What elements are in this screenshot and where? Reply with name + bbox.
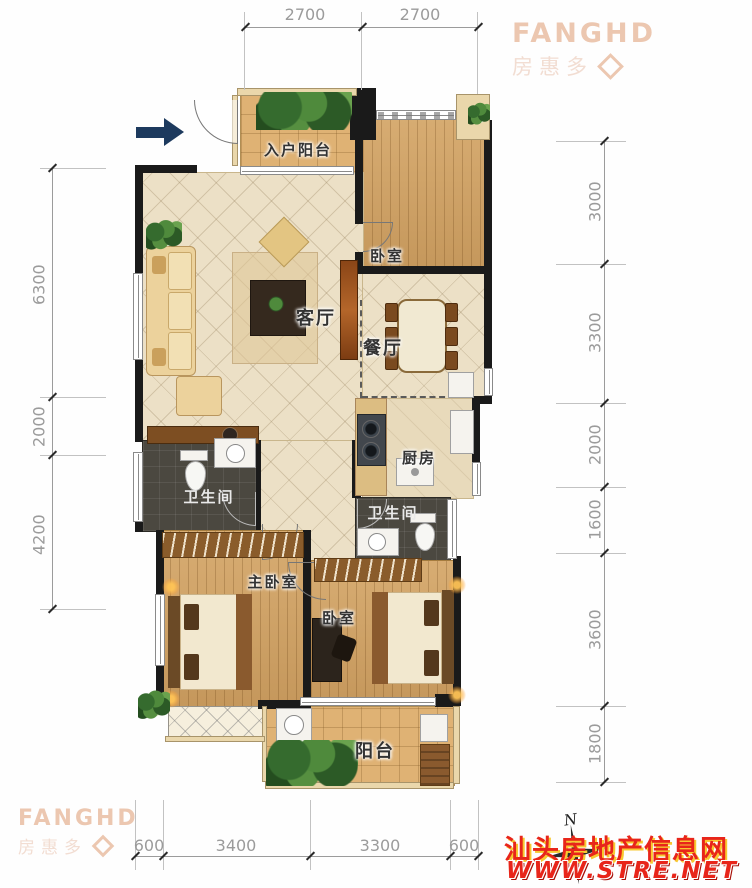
plant <box>468 102 490 126</box>
dimension-label: 2700 <box>365 5 475 23</box>
extension-line <box>556 403 626 404</box>
plant <box>146 220 182 250</box>
wall-segment <box>355 138 363 224</box>
bed-headboard <box>168 596 180 688</box>
wall-segment <box>256 440 261 530</box>
pillow <box>184 604 199 630</box>
extension-line <box>310 800 311 870</box>
wall-segment <box>135 522 143 532</box>
balcony-parapet <box>453 706 460 784</box>
window-mullions <box>378 112 454 119</box>
bed-headboard <box>442 590 454 684</box>
dimension-label: 1600 <box>586 482 604 558</box>
toilet-tank <box>180 450 208 461</box>
tv-console <box>340 260 358 360</box>
table-plant <box>268 296 284 312</box>
window <box>133 273 143 360</box>
wardrobe <box>314 558 422 582</box>
dimension-tick <box>474 22 483 31</box>
washer-drum <box>284 715 304 735</box>
compass-north-label: N <box>563 810 579 830</box>
dimension-line <box>52 168 53 610</box>
brand-logo-top: FANGHD 房惠多 <box>512 18 682 78</box>
nightstand-lamp <box>448 576 466 594</box>
dimension-label: 6300 <box>30 230 48 340</box>
wall-segment <box>135 360 143 442</box>
room-label-balcony: 阳台 <box>350 740 400 760</box>
wash-basin <box>368 533 386 551</box>
stove-burner <box>362 420 380 438</box>
ottoman <box>176 376 222 416</box>
dimension-label: 3300 <box>334 836 426 854</box>
room-label-master-bedroom: 主卧室 <box>242 572 304 590</box>
dining-chair <box>445 351 458 370</box>
window <box>155 594 165 666</box>
wall-segment <box>135 165 197 173</box>
dimension-label: 3000 <box>586 162 604 242</box>
balcony-cabinet <box>420 744 450 786</box>
extension-line <box>556 141 626 142</box>
entry-door-arc <box>194 100 238 144</box>
sofa-cushion <box>168 292 192 330</box>
brand-logo-bottom: FANGHD 房惠多 <box>18 806 158 860</box>
wall-segment <box>484 278 492 370</box>
window <box>472 462 481 496</box>
room-label-living: 客厅 <box>290 306 342 328</box>
bay-window-seat <box>168 706 266 738</box>
sliding-door <box>240 166 354 175</box>
wall-segment <box>362 266 484 274</box>
room-label-bathroom-1: 卫生间 <box>176 488 242 504</box>
plant <box>256 92 352 130</box>
watermark-url: WWW.STRE.NET <box>506 858 738 884</box>
nightstand-lamp <box>162 578 180 596</box>
brand-logo-cn: 房惠多 <box>18 833 87 858</box>
fridge <box>450 410 474 454</box>
pillow <box>184 654 199 680</box>
sofa-pillow <box>152 348 166 366</box>
floorplan-image: 入户阳台 卧室 客厅 餐厅 厨房 卫生间 卫生间 主卧室 卧室 阳台 2700 … <box>0 0 752 888</box>
extension-line <box>244 12 245 90</box>
diamond-icon <box>597 53 624 80</box>
dining-chair <box>445 303 458 322</box>
extension-line <box>556 264 626 265</box>
sliding-door <box>300 697 436 706</box>
room-label-bathroom-2: 卫生间 <box>360 504 426 520</box>
brand-logo-cn: 房惠多 <box>512 51 593 81</box>
room-label-bedroom-2: 卧室 <box>318 608 360 626</box>
dining-chair <box>385 303 398 322</box>
brand-logo-cn-row: 房惠多 <box>512 51 682 81</box>
wall-segment <box>135 165 143 273</box>
dimension-label: 2000 <box>30 392 48 462</box>
nightstand-lamp <box>448 686 466 704</box>
dimension-label: 2700 <box>250 5 360 23</box>
entry-arrow-icon <box>136 118 184 146</box>
dimension-label: 2000 <box>586 405 604 485</box>
entry-arrow-head <box>164 118 184 146</box>
bed-runner <box>236 594 252 690</box>
dimension-label: 1800 <box>586 704 604 784</box>
wardrobe <box>162 532 304 558</box>
stove-burner <box>362 442 380 460</box>
bay-window-sill <box>165 736 265 742</box>
sofa-pillow <box>152 256 166 274</box>
window <box>484 368 493 396</box>
room-label-bedroom-top: 卧室 <box>366 246 408 264</box>
window <box>133 452 143 522</box>
plant <box>138 690 170 720</box>
sideboard <box>448 372 474 398</box>
plant <box>266 740 358 786</box>
wall-segment <box>303 530 311 560</box>
sink-drain <box>411 468 419 476</box>
brand-logo-name: FANGHD <box>18 806 158 831</box>
water-heater <box>420 714 448 742</box>
room-label-entry-balcony: 入户阳台 <box>248 140 348 158</box>
wash-basin <box>226 444 245 463</box>
dimension-label: 4200 <box>30 490 48 580</box>
dimension-label: 3400 <box>190 836 282 854</box>
dimension-label: 3300 <box>586 293 604 373</box>
brand-logo-cn-row: 房惠多 <box>18 833 158 858</box>
extension-line <box>361 12 362 90</box>
window <box>447 499 457 559</box>
sofa-cushion <box>168 252 192 290</box>
wall-segment <box>484 120 492 278</box>
dining-chair <box>445 327 458 346</box>
dimension-label: 600 <box>440 836 488 854</box>
brand-logo-name: FANGHD <box>512 18 682 49</box>
pillow <box>424 600 439 626</box>
sofa-cushion <box>168 332 192 370</box>
bed-runner <box>372 592 388 684</box>
diamond-icon <box>92 834 115 857</box>
room-label-kitchen: 厨房 <box>396 448 442 466</box>
dimension-label: 3600 <box>586 590 604 670</box>
entry-arrow-shaft <box>136 127 164 138</box>
pillow <box>424 650 439 676</box>
room-label-dining: 餐厅 <box>360 336 406 358</box>
